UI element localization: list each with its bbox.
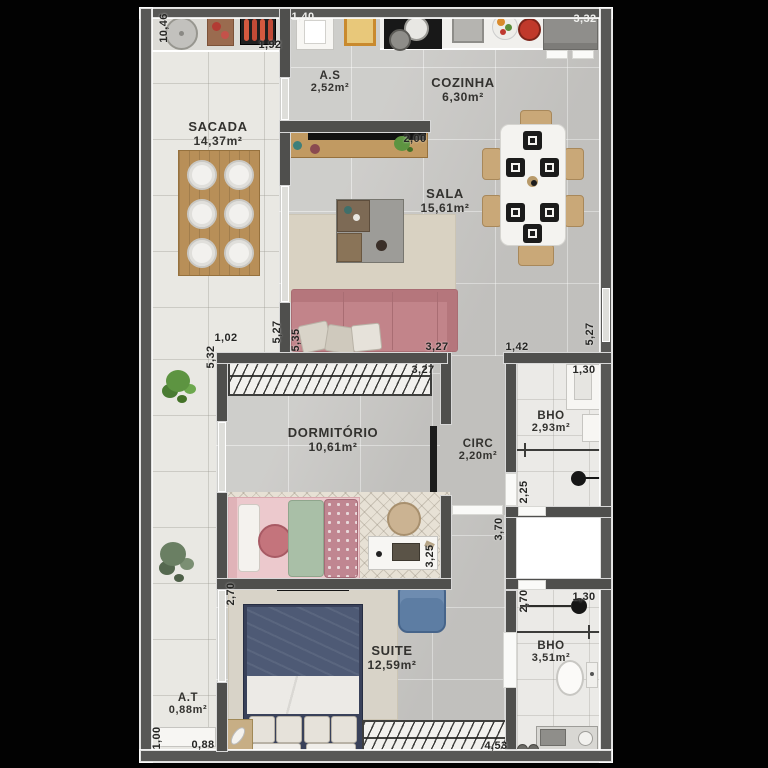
decor-item [376, 240, 387, 251]
sofa-pillow [351, 323, 383, 353]
dim-3-32: 3,32 [573, 13, 596, 25]
wall-dorm-suite [216, 578, 452, 590]
kitchen-sink [452, 15, 484, 43]
dim-5-35: 5,35 [290, 328, 302, 351]
room-label-sala: SALA 15,61m² [421, 187, 470, 215]
bed-cushion [304, 716, 330, 743]
dim-1-00: 1,00 [151, 726, 163, 749]
wall-sala-dorm [216, 352, 448, 364]
window-service-balcony [281, 78, 289, 120]
skewer [252, 19, 257, 41]
skewer [244, 19, 249, 41]
room-label-bho-sup: BHO 2,93m² [532, 410, 570, 435]
dim-1-92: 1,92 [258, 39, 281, 51]
divider-tick [524, 443, 526, 457]
room-label-circ: CIRC 2,20m² [459, 438, 497, 463]
veggie-dot [505, 24, 512, 31]
wall-sala-bho [503, 352, 612, 364]
dining-chair [482, 148, 502, 180]
red-pot [518, 18, 541, 41]
dim-3-27-lower: 3,27 [411, 364, 434, 376]
vanity-basin [540, 729, 566, 746]
toilet [556, 660, 584, 696]
wall-left [140, 8, 152, 762]
round-basin [578, 731, 593, 746]
placemat [506, 203, 525, 222]
door-leaf-dormitorio [430, 426, 437, 492]
dim-1-30-bottom: 1,30 [572, 591, 595, 603]
desk-item [376, 551, 382, 557]
folded-sheet [247, 676, 359, 714]
dim-2-00: 2,00 [403, 133, 426, 145]
dining-chair [564, 148, 584, 180]
desk-chair [387, 502, 421, 536]
sink-drain-dot [179, 31, 184, 36]
dining-chair [564, 195, 584, 227]
navy-duvet [247, 607, 359, 677]
flush-dot [590, 672, 594, 676]
wall-at-suite [216, 682, 228, 752]
meat-dot [221, 31, 229, 39]
entry-door-sill [572, 50, 594, 59]
window-dormitorio [218, 422, 226, 492]
wall-bottom [140, 750, 612, 762]
placemat [523, 131, 542, 150]
dim-0-88: 0,88 [191, 739, 214, 751]
meat-dot [212, 22, 221, 31]
bed-cushion [331, 716, 357, 743]
room-label-servico: A.S 2,52m² [311, 70, 349, 95]
door-leaf-bho-inf [503, 632, 517, 688]
divider-tick [588, 625, 590, 639]
coffee-table-shelf [337, 233, 362, 262]
wall-dorm-circ-low [440, 495, 452, 590]
placemat [540, 203, 559, 222]
dim-1-02: 1,02 [214, 332, 237, 344]
toilet-bar [585, 477, 600, 479]
room-label-suite: SUITE 12,59m² [368, 644, 417, 672]
cutting-board [207, 18, 234, 46]
floor-plan: SACADA 14,37m² A.S 2,52m² COZINHA 6,30m²… [0, 0, 768, 768]
placemat [540, 158, 559, 177]
plate [187, 160, 217, 190]
plant [166, 370, 190, 392]
dim-4-53: 4,53 [484, 740, 507, 752]
door-sill-suite [452, 505, 503, 515]
dining-chair [518, 244, 554, 266]
laptop [392, 543, 420, 561]
wall-top [140, 8, 612, 18]
dim-3-27-upper: 3,27 [425, 341, 448, 353]
entry-door-sill [546, 50, 568, 59]
dim-1-40: 1,40 [291, 11, 314, 23]
wall-right [600, 8, 612, 762]
dining-chair [482, 195, 502, 227]
pot [389, 29, 411, 51]
pink-blanket [324, 499, 358, 578]
placemat [506, 158, 525, 177]
dim-1-42: 1,42 [505, 341, 528, 353]
room-label-dormitorio: DORMITÓRIO 10,61m² [288, 426, 379, 454]
dim-5-32: 5,32 [205, 345, 217, 368]
door-sill-bho-sup [505, 473, 517, 506]
plate [224, 238, 254, 268]
wall-tv [279, 120, 431, 133]
plate [224, 160, 254, 190]
centerpiece-dot [531, 180, 537, 186]
tray-item [353, 214, 360, 221]
window-sala-right [602, 288, 610, 342]
plant [160, 542, 186, 566]
washing-machine [344, 16, 376, 46]
toilet-top-view [571, 471, 586, 486]
dim-1-30-top: 1,30 [572, 364, 595, 376]
decor-vase [293, 141, 302, 150]
skewer [260, 19, 265, 41]
veggie-dot [500, 29, 506, 35]
sliding-door-sala-balcony [281, 186, 289, 302]
plate [224, 199, 254, 229]
tray-item [344, 206, 352, 214]
green-blanket [288, 500, 324, 577]
round-pillow [258, 524, 292, 558]
room-label-sacada: SACADA 14,37m² [188, 120, 247, 148]
wall-circ-bho [505, 352, 517, 473]
skewer [268, 19, 273, 41]
bed-pillow [238, 504, 260, 572]
sofa-seam [392, 292, 393, 350]
bathroom-sink [582, 414, 600, 442]
wall-balcony-dorm-low [216, 492, 228, 590]
shower-divider [517, 449, 600, 451]
bed-cushion [276, 716, 302, 743]
shaft-access-top [518, 506, 546, 516]
veggie-dot [497, 18, 505, 26]
shower-drain [574, 372, 592, 400]
room-label-at: A.T 0,88m² [169, 692, 207, 717]
decor-vase [310, 144, 320, 154]
shaft-floor [517, 516, 600, 579]
plate [187, 238, 217, 268]
room-label-bho-inf: BHO 3,51m² [532, 640, 570, 665]
dim-2-25: 2,25 [518, 480, 530, 503]
room-label-cozinha: COZINHA 6,30m² [431, 76, 494, 104]
dim-3-70: 3,70 [493, 517, 505, 540]
dim-5-27-left: 5,27 [271, 320, 283, 343]
dim-2-70-left: 2,70 [225, 582, 237, 605]
plate [187, 199, 217, 229]
dim-2-70-right: 2,70 [518, 589, 530, 612]
laundry-tub-basin [304, 20, 326, 44]
dim-5-27-right: 5,27 [584, 322, 596, 345]
dim-3-25: 3,25 [424, 544, 436, 567]
dim-10-46: 10,46 [158, 13, 170, 43]
placemat [523, 224, 542, 243]
